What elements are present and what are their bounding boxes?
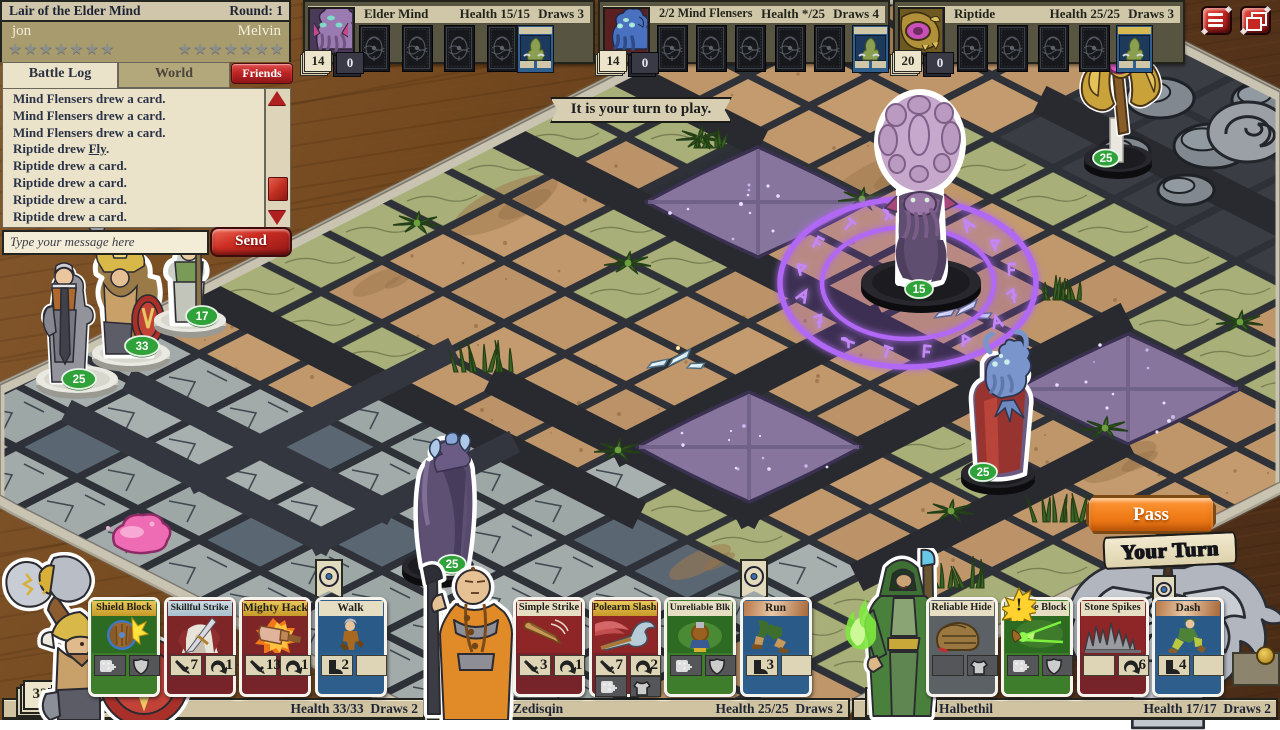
svg-text:25: 25 <box>977 467 990 479</box>
svg-text:25: 25 <box>73 374 86 386</box>
svg-text:!: ! <box>1016 594 1022 614</box>
svg-text:17: 17 <box>196 311 209 323</box>
svg-text:15: 15 <box>913 284 926 296</box>
svg-text:33: 33 <box>136 341 149 353</box>
svg-text:25: 25 <box>1100 153 1113 165</box>
